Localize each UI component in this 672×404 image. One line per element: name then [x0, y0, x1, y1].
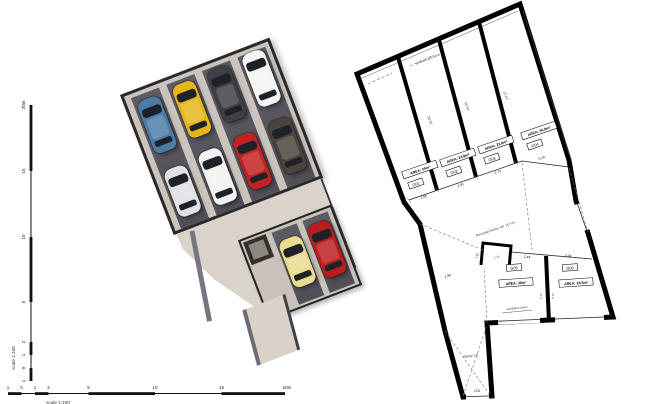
horizontal-scale-ruler: 1 0 1 2 5 10 15 20m scale 1:100: [7, 385, 292, 404]
scale-tick-label: 5: [87, 385, 90, 390]
scale-tick-label: 1: [7, 385, 10, 390]
garage-id-label: G05: [510, 266, 517, 270]
scale-tick-label: 20m: [283, 385, 292, 390]
scale-rulers: 20m 15 10 5 2 1 0 1 scale 1:100 1 0 1 2 …: [0, 0, 336, 404]
dimension-label: 2.44: [524, 255, 531, 260]
scale-tick-label: 15: [219, 385, 225, 390]
scale-tick-label: 20m: [21, 100, 26, 109]
dimension-label: 5.73: [539, 293, 543, 299]
scale-tick-label: 0: [20, 385, 23, 390]
scale-ratio-label: scale 1:100: [11, 346, 16, 370]
floor-plan-view: AREA: 24m² G01 2.85 AREA: 24.8m² G02 2.8…: [336, 0, 672, 404]
outer-wall: [357, 4, 613, 397]
scale-tick-label: 1: [21, 379, 26, 382]
scale-tick-label: 15: [21, 168, 26, 174]
scale-tick-label: 5: [21, 300, 26, 303]
scale-tick-label: 0: [21, 366, 26, 369]
scale-tick-label: 2: [21, 340, 26, 343]
ramp-width-dimension: 2.52: [474, 389, 481, 393]
scale-tick-label: 1: [21, 353, 26, 356]
dimension-label: 3.34: [565, 254, 572, 259]
architectural-drawing: 20m 15 10 5 2 1 0 1 scale 1:100 1 0 1 2 …: [0, 0, 672, 404]
garage-id-label: G06: [566, 266, 573, 270]
scale-ratio-label: scale 1:100: [46, 400, 70, 404]
floor-plan-svg: AREA: 24m² G01 2.85 AREA: 24.8m² G02 2.8…: [336, 0, 672, 404]
scale-tick-label: 1: [34, 385, 37, 390]
vertical-scale-ruler: 20m 15 10 5 2 1 0 1 scale 1:100: [11, 100, 32, 382]
scale-tick-label: 10: [21, 234, 26, 240]
scale-tick-label: 2: [47, 385, 50, 390]
scale-tick-label: 10: [152, 385, 158, 390]
dimension-label: 5.77: [551, 293, 555, 299]
